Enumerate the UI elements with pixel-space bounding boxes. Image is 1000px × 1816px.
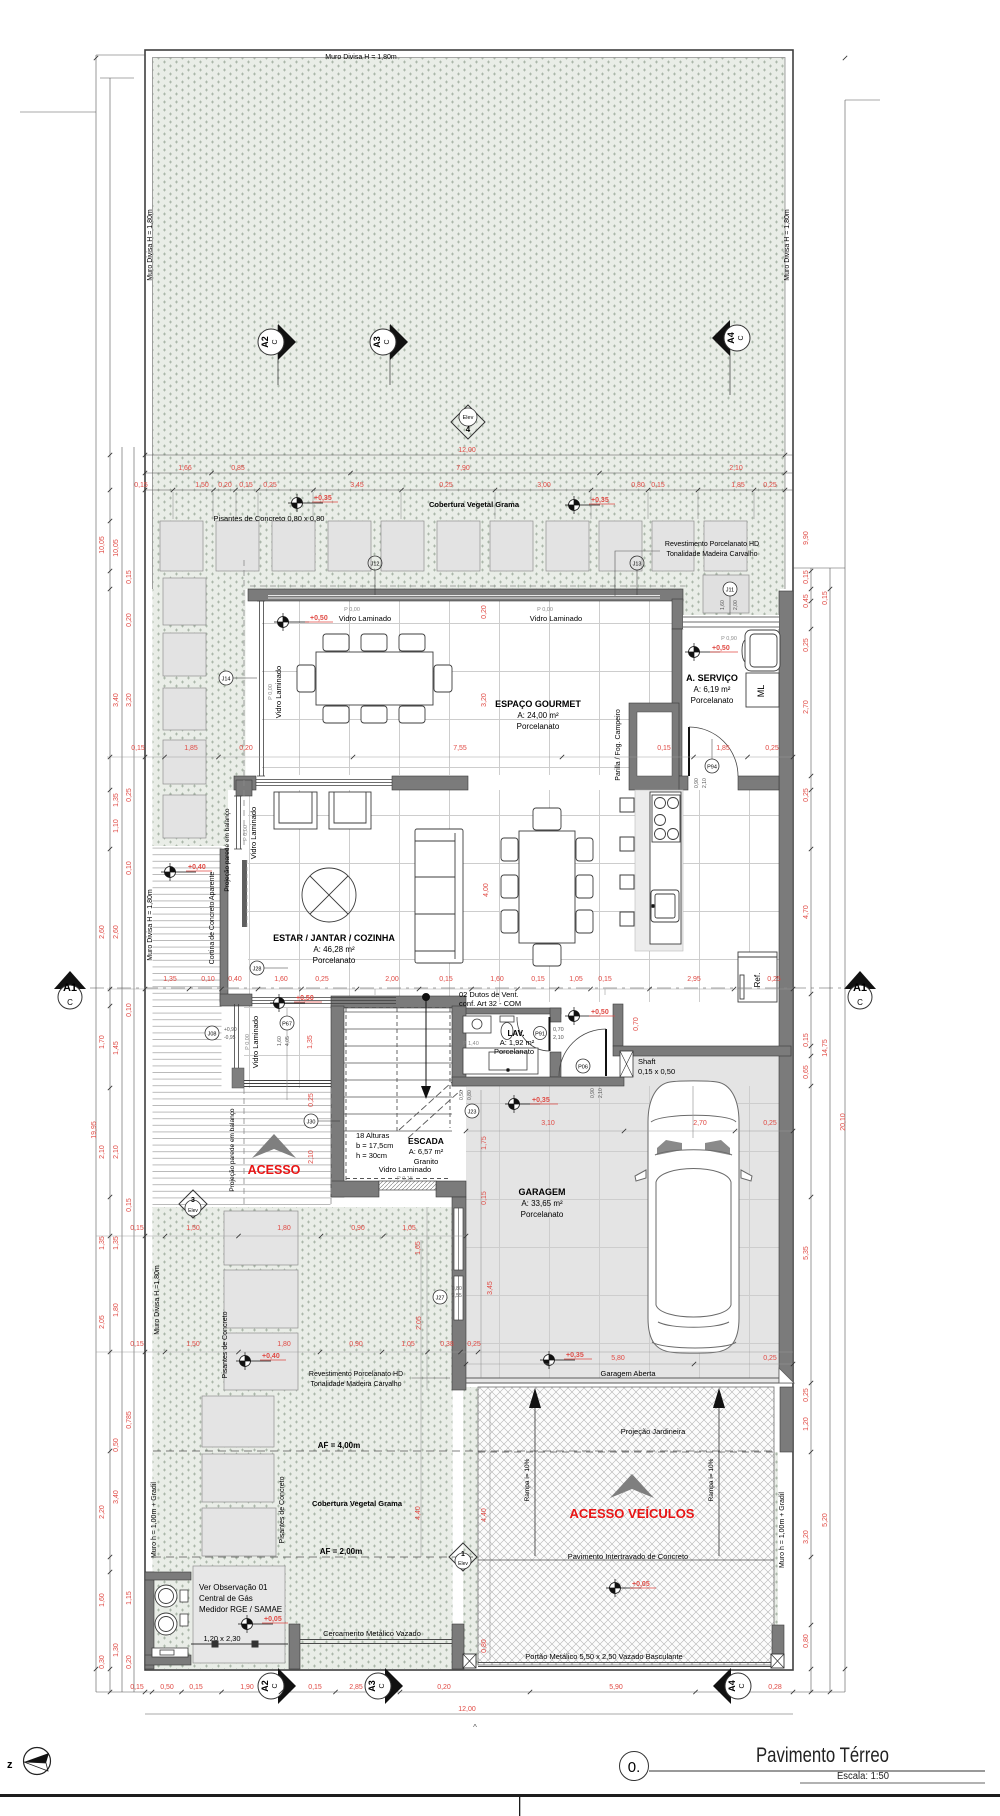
- svg-text:Muro h = 1,00m + Gradil: Muro h = 1,00m + Gradil: [779, 1492, 786, 1568]
- svg-text:14,75: 14,75: [822, 1039, 829, 1057]
- svg-text:+0,35: +0,35: [591, 497, 609, 504]
- svg-text:P06: P06: [578, 1065, 588, 1071]
- svg-text:0,65: 0,65: [803, 1065, 810, 1079]
- svg-text:Vidro Laminado: Vidro Laminado: [379, 1165, 431, 1174]
- svg-text:ACESSO VEÍCULOS: ACESSO VEÍCULOS: [570, 1506, 695, 1521]
- svg-text:0,10: 0,10: [201, 976, 215, 983]
- svg-text:Muro Divisa H = 1,80m: Muro Divisa H = 1,80m: [325, 54, 397, 61]
- svg-text:2,10: 2,10: [729, 465, 743, 472]
- svg-text:ESPAÇO GOURMET: ESPAÇO GOURMET: [495, 699, 581, 709]
- svg-text:Central de Gás: Central de Gás: [199, 1594, 253, 1603]
- svg-text:1,80: 1,80: [113, 1303, 120, 1317]
- svg-text:+0,90: +0,90: [224, 1027, 237, 1033]
- svg-text:1,60: 1,60: [99, 1593, 106, 1607]
- svg-text:3,00: 3,00: [537, 482, 551, 489]
- svg-text:Vidro Laminado: Vidro Laminado: [249, 807, 258, 859]
- svg-text:1,66: 1,66: [178, 465, 192, 472]
- svg-text:2,20: 2,20: [99, 1505, 106, 1519]
- svg-text:Medidor RGE / SAMAE: Medidor RGE / SAMAE: [199, 1605, 282, 1614]
- svg-text:0,25: 0,25: [803, 638, 810, 652]
- svg-text:C: C: [272, 339, 279, 344]
- svg-text:A: 33,65 m²: A: 33,65 m²: [521, 1199, 563, 1208]
- svg-text:0,25: 0,25: [763, 1120, 777, 1127]
- svg-text:10,05: 10,05: [113, 539, 120, 557]
- svg-text:4,00: 4,00: [483, 883, 490, 897]
- svg-text:0,25: 0,25: [263, 482, 277, 489]
- svg-text:1,60: 1,60: [720, 600, 726, 610]
- svg-text:Vidro Laminado: Vidro Laminado: [274, 666, 283, 718]
- svg-text:0,28: 0,28: [768, 1684, 782, 1691]
- svg-text:C: C: [384, 339, 391, 344]
- svg-text:0,20: 0,20: [481, 605, 488, 619]
- svg-text:Projeção Jardineira: Projeção Jardineira: [621, 1427, 686, 1436]
- svg-text:0,20: 0,20: [126, 613, 133, 627]
- svg-text:0,15: 0,15: [803, 570, 810, 584]
- svg-text:0,25: 0,25: [308, 1093, 315, 1107]
- svg-text:GARAGEM: GARAGEM: [519, 1187, 566, 1197]
- svg-text:C: C: [739, 1683, 746, 1688]
- svg-text:0,70: 0,70: [633, 1017, 640, 1031]
- svg-text:0,10: 0,10: [126, 1003, 133, 1017]
- svg-text:Tonalidade Madeira Carvalho: Tonalidade Madeira Carvalho: [666, 551, 757, 558]
- svg-text:A. SERVIÇO: A. SERVIÇO: [686, 673, 738, 683]
- svg-text:3,10: 3,10: [541, 1120, 555, 1127]
- svg-text:0,25: 0,25: [765, 745, 779, 752]
- svg-text:+0,40: +0,40: [262, 1353, 280, 1360]
- svg-text:0,15: 0,15: [657, 745, 671, 752]
- svg-text:Cortina de Concreto Aparente: Cortina de Concreto Aparente: [209, 872, 216, 965]
- svg-text:0,40: 0,40: [228, 976, 242, 983]
- svg-text:1,10: 1,10: [113, 819, 120, 833]
- svg-text:Elev: Elev: [463, 415, 474, 421]
- svg-text:0,50: 0,50: [113, 1438, 120, 1452]
- svg-text:1,85: 1,85: [731, 482, 745, 489]
- svg-text:0,25: 0,25: [439, 482, 453, 489]
- svg-text:A3: A3: [372, 336, 382, 348]
- svg-text:1,05: 1,05: [402, 1225, 416, 1232]
- svg-text:conf. Art 32 - COM: conf. Art 32 - COM: [459, 999, 521, 1008]
- svg-text:0,30: 0,30: [99, 1655, 106, 1669]
- svg-text:1,35: 1,35: [113, 793, 120, 807]
- svg-text:Revestimento Porcelanato HD: Revestimento Porcelanato HD: [309, 1371, 403, 1378]
- svg-text:Vidro Laminado: Vidro Laminado: [530, 614, 582, 623]
- svg-text:0,25: 0,25: [763, 1355, 777, 1362]
- svg-text:Muro h = 1,00m + Gradil: Muro h = 1,00m + Gradil: [151, 1482, 158, 1558]
- svg-text:P 0,90: P 0,90: [721, 636, 737, 642]
- svg-text:A3: A3: [367, 1680, 377, 1692]
- svg-text:P 0,00: P 0,00: [344, 607, 360, 613]
- svg-text:Projeção parede em balanço: Projeção parede em balanço: [224, 808, 231, 891]
- svg-text:2,10: 2,10: [553, 1035, 564, 1041]
- svg-text:+0,05: +0,05: [264, 1616, 282, 1623]
- svg-text:P94: P94: [707, 765, 717, 771]
- svg-text:0,15: 0,15: [130, 1341, 144, 1348]
- svg-text:^: ^: [473, 1723, 477, 1732]
- svg-text:Pavimento Térreo: Pavimento Térreo: [756, 1744, 889, 1767]
- svg-text:1: 1: [461, 1551, 465, 1558]
- svg-text:Pavimento Intertravado de Conc: Pavimento Intertravado de Concreto: [568, 1552, 688, 1561]
- svg-text:0,90: 0,90: [351, 1225, 365, 1232]
- svg-text:P 0,15: P 0,15: [397, 1176, 413, 1182]
- svg-text:+0,50: +0,50: [310, 615, 328, 622]
- svg-text:2,10: 2,10: [99, 1145, 106, 1159]
- svg-text:0,80: 0,80: [481, 1639, 488, 1653]
- svg-text:+0,05: +0,05: [632, 1581, 650, 1588]
- svg-text:J23: J23: [468, 1110, 477, 1116]
- svg-text:ML: ML: [756, 685, 766, 698]
- svg-text:0,15: 0,15: [822, 591, 829, 605]
- svg-text:0,15: 0,15: [531, 976, 545, 983]
- svg-text:Muro Divisa H =1,80m: Muro Divisa H =1,80m: [154, 1265, 161, 1335]
- svg-text:0,85: 0,85: [231, 465, 245, 472]
- svg-text:A: 6,57 m²: A: 6,57 m²: [409, 1147, 444, 1156]
- svg-text:Parilla / Fog. Campeiro: Parilla / Fog. Campeiro: [615, 709, 622, 781]
- svg-text:P67: P67: [282, 1022, 292, 1028]
- svg-text:0,90: 0,90: [694, 778, 700, 788]
- svg-text:0,15: 0,15: [803, 1033, 810, 1047]
- svg-text:Pisantes de Concreto 0,80 x 0,: Pisantes de Concreto 0,80 x 0,80: [214, 514, 325, 523]
- svg-text:20,10: 20,10: [840, 1113, 847, 1131]
- svg-text:0,80: 0,80: [452, 1286, 462, 1292]
- svg-text:0,80: 0,80: [467, 1090, 473, 1100]
- svg-text:0,25: 0,25: [803, 788, 810, 802]
- svg-text:3,45: 3,45: [350, 482, 364, 489]
- svg-text:AF = 2,00m: AF = 2,00m: [320, 1547, 362, 1556]
- svg-text:0,15: 0,15: [651, 482, 665, 489]
- svg-text:4,05: 4,05: [285, 1036, 291, 1046]
- svg-text:A4: A4: [727, 1680, 737, 1692]
- svg-text:+0,35: +0,35: [314, 495, 332, 502]
- svg-text:ESCADA: ESCADA: [408, 1136, 444, 1146]
- svg-text:0,38: 0,38: [440, 1341, 454, 1348]
- svg-text:+0,35: +0,35: [566, 1352, 584, 1359]
- svg-text:A1: A1: [853, 982, 867, 994]
- svg-text:1,45: 1,45: [113, 1041, 120, 1055]
- svg-text:0,25: 0,25: [763, 482, 777, 489]
- svg-text:1,30: 1,30: [113, 1643, 120, 1657]
- svg-text:+0,50: +0,50: [591, 1009, 609, 1016]
- svg-text:0,15: 0,15: [239, 482, 253, 489]
- svg-text:Vidro Laminado: Vidro Laminado: [339, 614, 391, 623]
- svg-text:2,70: 2,70: [693, 1120, 707, 1127]
- svg-text:0.: 0.: [628, 1759, 641, 1776]
- svg-text:ESTAR / JANTAR / COZINHA: ESTAR / JANTAR / COZINHA: [273, 933, 395, 943]
- svg-text:0,15: 0,15: [308, 1684, 322, 1691]
- svg-text:02 Dutos de Vent.: 02 Dutos de Vent.: [459, 990, 519, 999]
- svg-text:P 0,00: P 0,00: [537, 607, 553, 613]
- svg-text:0,15: 0,15: [131, 745, 145, 752]
- svg-text:Ver Observação 01: Ver Observação 01: [199, 1583, 268, 1592]
- svg-text:Cobertura Vegetal Grama: Cobertura Vegetal Grama: [312, 1499, 403, 1508]
- svg-text:0,25: 0,25: [467, 1341, 481, 1348]
- svg-text:7,55: 7,55: [453, 745, 467, 752]
- svg-text:J28: J28: [253, 967, 262, 973]
- svg-text:J14: J14: [222, 677, 231, 683]
- svg-text:1,80: 1,80: [277, 1225, 291, 1232]
- svg-text:1,50: 1,50: [186, 1225, 200, 1232]
- svg-text:Muro Divisa H = 1,80m: Muro Divisa H = 1,80m: [784, 209, 791, 281]
- svg-text:1,80: 1,80: [277, 1341, 291, 1348]
- svg-text:0,785: 0,785: [126, 1411, 133, 1429]
- svg-text:5,80: 5,80: [611, 1355, 625, 1362]
- svg-text:1,35: 1,35: [163, 976, 177, 983]
- svg-text:18 Alturas: 18 Alturas: [356, 1131, 390, 1140]
- svg-text:-0,95: -0,95: [224, 1035, 236, 1041]
- svg-text:3,45: 3,45: [487, 1281, 494, 1295]
- svg-text:9,90: 9,90: [803, 531, 810, 545]
- svg-text:0,15: 0,15: [439, 976, 453, 983]
- svg-text:J27: J27: [436, 1296, 445, 1302]
- svg-text:Muro Divisa H = 1,80m: Muro Divisa H = 1,80m: [147, 889, 154, 961]
- svg-text:0,15: 0,15: [126, 570, 133, 584]
- svg-text:0,25: 0,25: [315, 976, 329, 983]
- svg-text:C: C: [738, 335, 745, 340]
- svg-text:Elev: Elev: [458, 1561, 468, 1567]
- svg-text:0,15 x 0,50: 0,15 x 0,50: [638, 1067, 675, 1076]
- svg-text:2,10: 2,10: [113, 1145, 120, 1159]
- svg-text:J30: J30: [307, 1120, 316, 1126]
- svg-text:3,20: 3,20: [126, 693, 133, 707]
- svg-text:Ref.: Ref.: [753, 973, 762, 988]
- svg-text:z: z: [7, 1759, 13, 1771]
- svg-text:Garagem Aberta: Garagem Aberta: [600, 1369, 656, 1378]
- svg-text:Rampa i= 10%: Rampa i= 10%: [524, 1458, 531, 1501]
- svg-text:C: C: [272, 1683, 279, 1688]
- svg-text:Elev: Elev: [188, 1208, 198, 1214]
- svg-text:1,35: 1,35: [99, 1236, 106, 1250]
- svg-text:P 0,00: P 0,00: [245, 1034, 251, 1050]
- svg-text:1,50: 1,50: [195, 482, 209, 489]
- svg-text:0,15: 0,15: [598, 976, 612, 983]
- svg-text:P 1,40: P 1,40: [463, 1041, 479, 1047]
- svg-text:Rampa i= 10%: Rampa i= 10%: [708, 1458, 715, 1501]
- svg-text:3,40: 3,40: [113, 693, 120, 707]
- svg-text:3,40: 3,40: [113, 1490, 120, 1504]
- svg-text:1,85: 1,85: [716, 745, 730, 752]
- svg-text:Pisantes de Concreto: Pisantes de Concreto: [279, 1476, 286, 1543]
- svg-text:0,90: 0,90: [349, 1341, 363, 1348]
- svg-text:0,15: 0,15: [130, 1684, 144, 1691]
- svg-text:h = 30cm: h = 30cm: [356, 1151, 387, 1160]
- svg-text:0,15: 0,15: [134, 482, 148, 489]
- svg-text:A2: A2: [260, 1680, 270, 1692]
- svg-text:Porcelanato: Porcelanato: [521, 1210, 564, 1219]
- svg-text:2,95: 2,95: [687, 976, 701, 983]
- svg-text:0,50: 0,50: [459, 1090, 465, 1100]
- svg-text:0,20: 0,20: [218, 482, 232, 489]
- svg-text:Vidro Laminado: Vidro Laminado: [251, 1016, 260, 1068]
- svg-text:2,10: 2,10: [702, 778, 708, 788]
- svg-text:5,90: 5,90: [609, 1684, 623, 1691]
- svg-text:AF = 4,00m: AF = 4,00m: [318, 1441, 360, 1450]
- svg-text:1,35: 1,35: [113, 1236, 120, 1250]
- svg-text:Porcelanato: Porcelanato: [313, 956, 356, 965]
- svg-text:1,90: 1,90: [240, 1684, 254, 1691]
- svg-text:4,40: 4,40: [481, 1508, 488, 1522]
- svg-text:A: 1,92 m²: A: 1,92 m²: [500, 1038, 535, 1047]
- svg-text:Portão Metálico 5,50 x 2,50 Va: Portão Metálico 5,50 x 2,50 Vazado Bascu…: [525, 1652, 682, 1661]
- svg-text:0,25: 0,25: [767, 976, 781, 983]
- svg-text:1,60: 1,60: [490, 976, 504, 983]
- svg-text:5,35: 5,35: [803, 1246, 810, 1260]
- svg-text:2,85: 2,85: [349, 1684, 363, 1691]
- svg-text:2,05: 2,05: [99, 1315, 106, 1329]
- svg-text:2,60: 2,60: [113, 925, 120, 939]
- svg-text:1,20: 1,20: [803, 1417, 810, 1431]
- svg-text:P 0,00: P 0,00: [268, 684, 274, 700]
- svg-text:3,20: 3,20: [803, 1530, 810, 1544]
- svg-text:0,50: 0,50: [160, 1684, 174, 1691]
- svg-text:Revestimento Porcelanato HD: Revestimento Porcelanato HD: [665, 541, 759, 548]
- svg-text:Porcelanato: Porcelanato: [494, 1047, 534, 1056]
- svg-text:0,25: 0,25: [803, 1388, 810, 1402]
- svg-text:1,60: 1,60: [277, 1036, 283, 1046]
- svg-text:A2: A2: [260, 336, 270, 348]
- svg-text:0,90: 0,90: [590, 1088, 596, 1098]
- svg-text:A: 24,00 m²: A: 24,00 m²: [517, 711, 559, 720]
- svg-text:1,20 x 2,30: 1,20 x 2,30: [203, 1634, 240, 1643]
- svg-text:+0,35: +0,35: [532, 1097, 550, 1104]
- svg-text:0,25: 0,25: [126, 788, 133, 802]
- svg-text:0,20: 0,20: [437, 1684, 451, 1691]
- svg-text:Muro Divisa H = 1,80m: Muro Divisa H = 1,80m: [147, 209, 154, 281]
- svg-text:A: 6,19 m²: A: 6,19 m²: [694, 685, 731, 694]
- svg-text:10,05: 10,05: [99, 536, 106, 554]
- svg-text:Tonalidade Madeira Carvalho: Tonalidade Madeira Carvalho: [310, 1381, 401, 1388]
- svg-text:1,75: 1,75: [481, 1136, 488, 1150]
- svg-text:0,20: 0,20: [126, 1655, 133, 1669]
- svg-text:2,10: 2,10: [308, 1150, 315, 1164]
- svg-text:b = 17,5cm: b = 17,5cm: [356, 1141, 393, 1150]
- svg-text:Pisantes de Concreto: Pisantes de Concreto: [222, 1311, 229, 1378]
- svg-text:1,15: 1,15: [126, 1591, 133, 1605]
- svg-text:A: 46,28 m²: A: 46,28 m²: [313, 945, 355, 954]
- svg-text:1,50: 1,50: [186, 1341, 200, 1348]
- svg-text:1,85: 1,85: [184, 745, 198, 752]
- svg-text:J11: J11: [726, 588, 734, 594]
- svg-text:19,95: 19,95: [91, 1121, 98, 1139]
- svg-text:3,20: 3,20: [481, 693, 488, 707]
- svg-text:+0,50: +0,50: [296, 995, 314, 1002]
- svg-text:Porcelanato: Porcelanato: [691, 696, 734, 705]
- svg-text:2,55: 2,55: [452, 1293, 462, 1299]
- svg-text:0,15: 0,15: [481, 1191, 488, 1205]
- svg-text:Escala: 1:50: Escala: 1:50: [837, 1771, 889, 1782]
- svg-text:2,70: 2,70: [803, 700, 810, 714]
- svg-text:1,05: 1,05: [569, 976, 583, 983]
- svg-text:1,70: 1,70: [99, 1035, 106, 1049]
- svg-text:A4: A4: [726, 332, 736, 344]
- svg-text:C: C: [379, 1683, 386, 1688]
- svg-text:2,00: 2,00: [385, 976, 399, 983]
- svg-text:3: 3: [191, 1197, 195, 1204]
- svg-text:Projeção parede em balanço: Projeção parede em balanço: [229, 1108, 236, 1191]
- svg-text:0,80: 0,80: [631, 482, 645, 489]
- svg-text:0,15: 0,15: [130, 1225, 144, 1232]
- svg-text:0,15: 0,15: [189, 1684, 203, 1691]
- svg-text:Cobertura Vegetal Grama: Cobertura Vegetal Grama: [429, 500, 520, 509]
- svg-text:C: C: [67, 998, 73, 1007]
- svg-text:J13: J13: [633, 562, 642, 568]
- svg-text:+0,40: +0,40: [188, 864, 206, 871]
- svg-text:2,10: 2,10: [598, 1088, 604, 1098]
- svg-text:0,10: 0,10: [126, 861, 133, 875]
- svg-text:0,15: 0,15: [126, 1198, 133, 1212]
- svg-text:2,00: 2,00: [733, 600, 739, 610]
- svg-text:0,20: 0,20: [239, 745, 253, 752]
- svg-text:ACESSO: ACESSO: [248, 1163, 301, 1177]
- svg-text:+0,50: +0,50: [712, 645, 730, 652]
- svg-text:12,00: 12,00: [458, 1706, 476, 1713]
- svg-text:C: C: [857, 998, 863, 1007]
- svg-text:Porcelanato: Porcelanato: [517, 722, 560, 731]
- svg-text:4: 4: [466, 425, 471, 434]
- svg-text:J08: J08: [208, 1032, 217, 1038]
- svg-text:4,70: 4,70: [803, 905, 810, 919]
- svg-text:P91: P91: [535, 1032, 545, 1038]
- svg-text:2,05: 2,05: [416, 1316, 423, 1330]
- svg-text:Shaft: Shaft: [638, 1057, 656, 1066]
- svg-text:0,70: 0,70: [553, 1027, 564, 1033]
- svg-text:2,60: 2,60: [99, 925, 106, 939]
- svg-text:1,05: 1,05: [401, 1341, 415, 1348]
- svg-text:5,20: 5,20: [822, 1513, 829, 1527]
- svg-text:1,35: 1,35: [307, 1035, 314, 1049]
- svg-text:0,80: 0,80: [803, 1634, 810, 1648]
- svg-text:A1: A1: [63, 982, 77, 994]
- svg-text:J12: J12: [371, 562, 380, 568]
- svg-text:0,45: 0,45: [803, 594, 810, 608]
- svg-text:Cercamento Metálico Vazado: Cercamento Metálico Vazado: [323, 1629, 421, 1638]
- svg-text:1,60: 1,60: [274, 976, 288, 983]
- svg-text:7,90: 7,90: [456, 465, 470, 472]
- svg-text:12,00: 12,00: [458, 447, 476, 454]
- svg-text:LAV.: LAV.: [508, 1029, 525, 1038]
